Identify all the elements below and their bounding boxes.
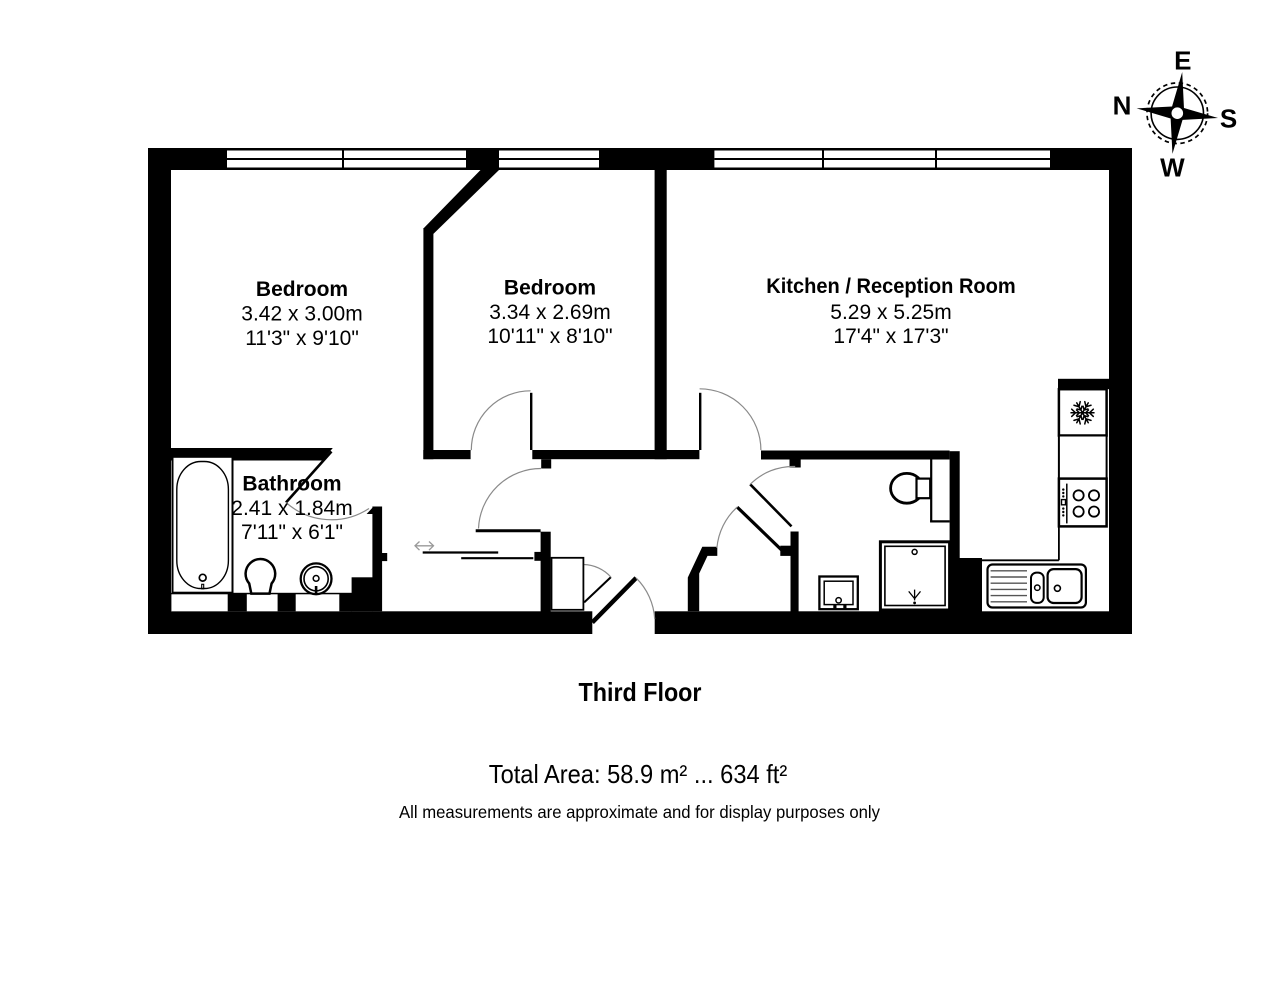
svg-text:W: W: [1160, 153, 1185, 183]
svg-text:2.41 x 1.84m: 2.41 x 1.84m: [231, 497, 352, 520]
svg-text:Bedroom: Bedroom: [504, 277, 596, 300]
svg-text:5.29 x 5.25m: 5.29 x 5.25m: [830, 301, 951, 324]
svg-text:3.34 x 2.69m: 3.34 x 2.69m: [489, 301, 610, 324]
svg-text:All measurements are approxima: All measurements are approximate and for…: [399, 802, 880, 822]
svg-text:E: E: [1174, 46, 1191, 76]
svg-text:Bedroom: Bedroom: [256, 278, 348, 301]
svg-text:11'3" x 9'10": 11'3" x 9'10": [245, 327, 359, 350]
svg-text:N: N: [1113, 91, 1132, 121]
svg-text:Total Area: 58.9 m² ... 634 ft: Total Area: 58.9 m² ... 634 ft²: [489, 759, 788, 789]
svg-text:Kitchen / Reception Room: Kitchen / Reception Room: [766, 275, 1016, 298]
svg-text:17'4" x 17'3": 17'4" x 17'3": [833, 325, 948, 348]
svg-text:Third Floor: Third Floor: [579, 677, 702, 707]
svg-text:3.42 x 3.00m: 3.42 x 3.00m: [241, 303, 362, 326]
svg-text:Bathroom: Bathroom: [242, 472, 341, 495]
svg-text:10'11" x 8'10": 10'11" x 8'10": [487, 325, 612, 348]
svg-text:S: S: [1220, 104, 1237, 134]
svg-text:7'11" x 6'1": 7'11" x 6'1": [241, 521, 343, 544]
